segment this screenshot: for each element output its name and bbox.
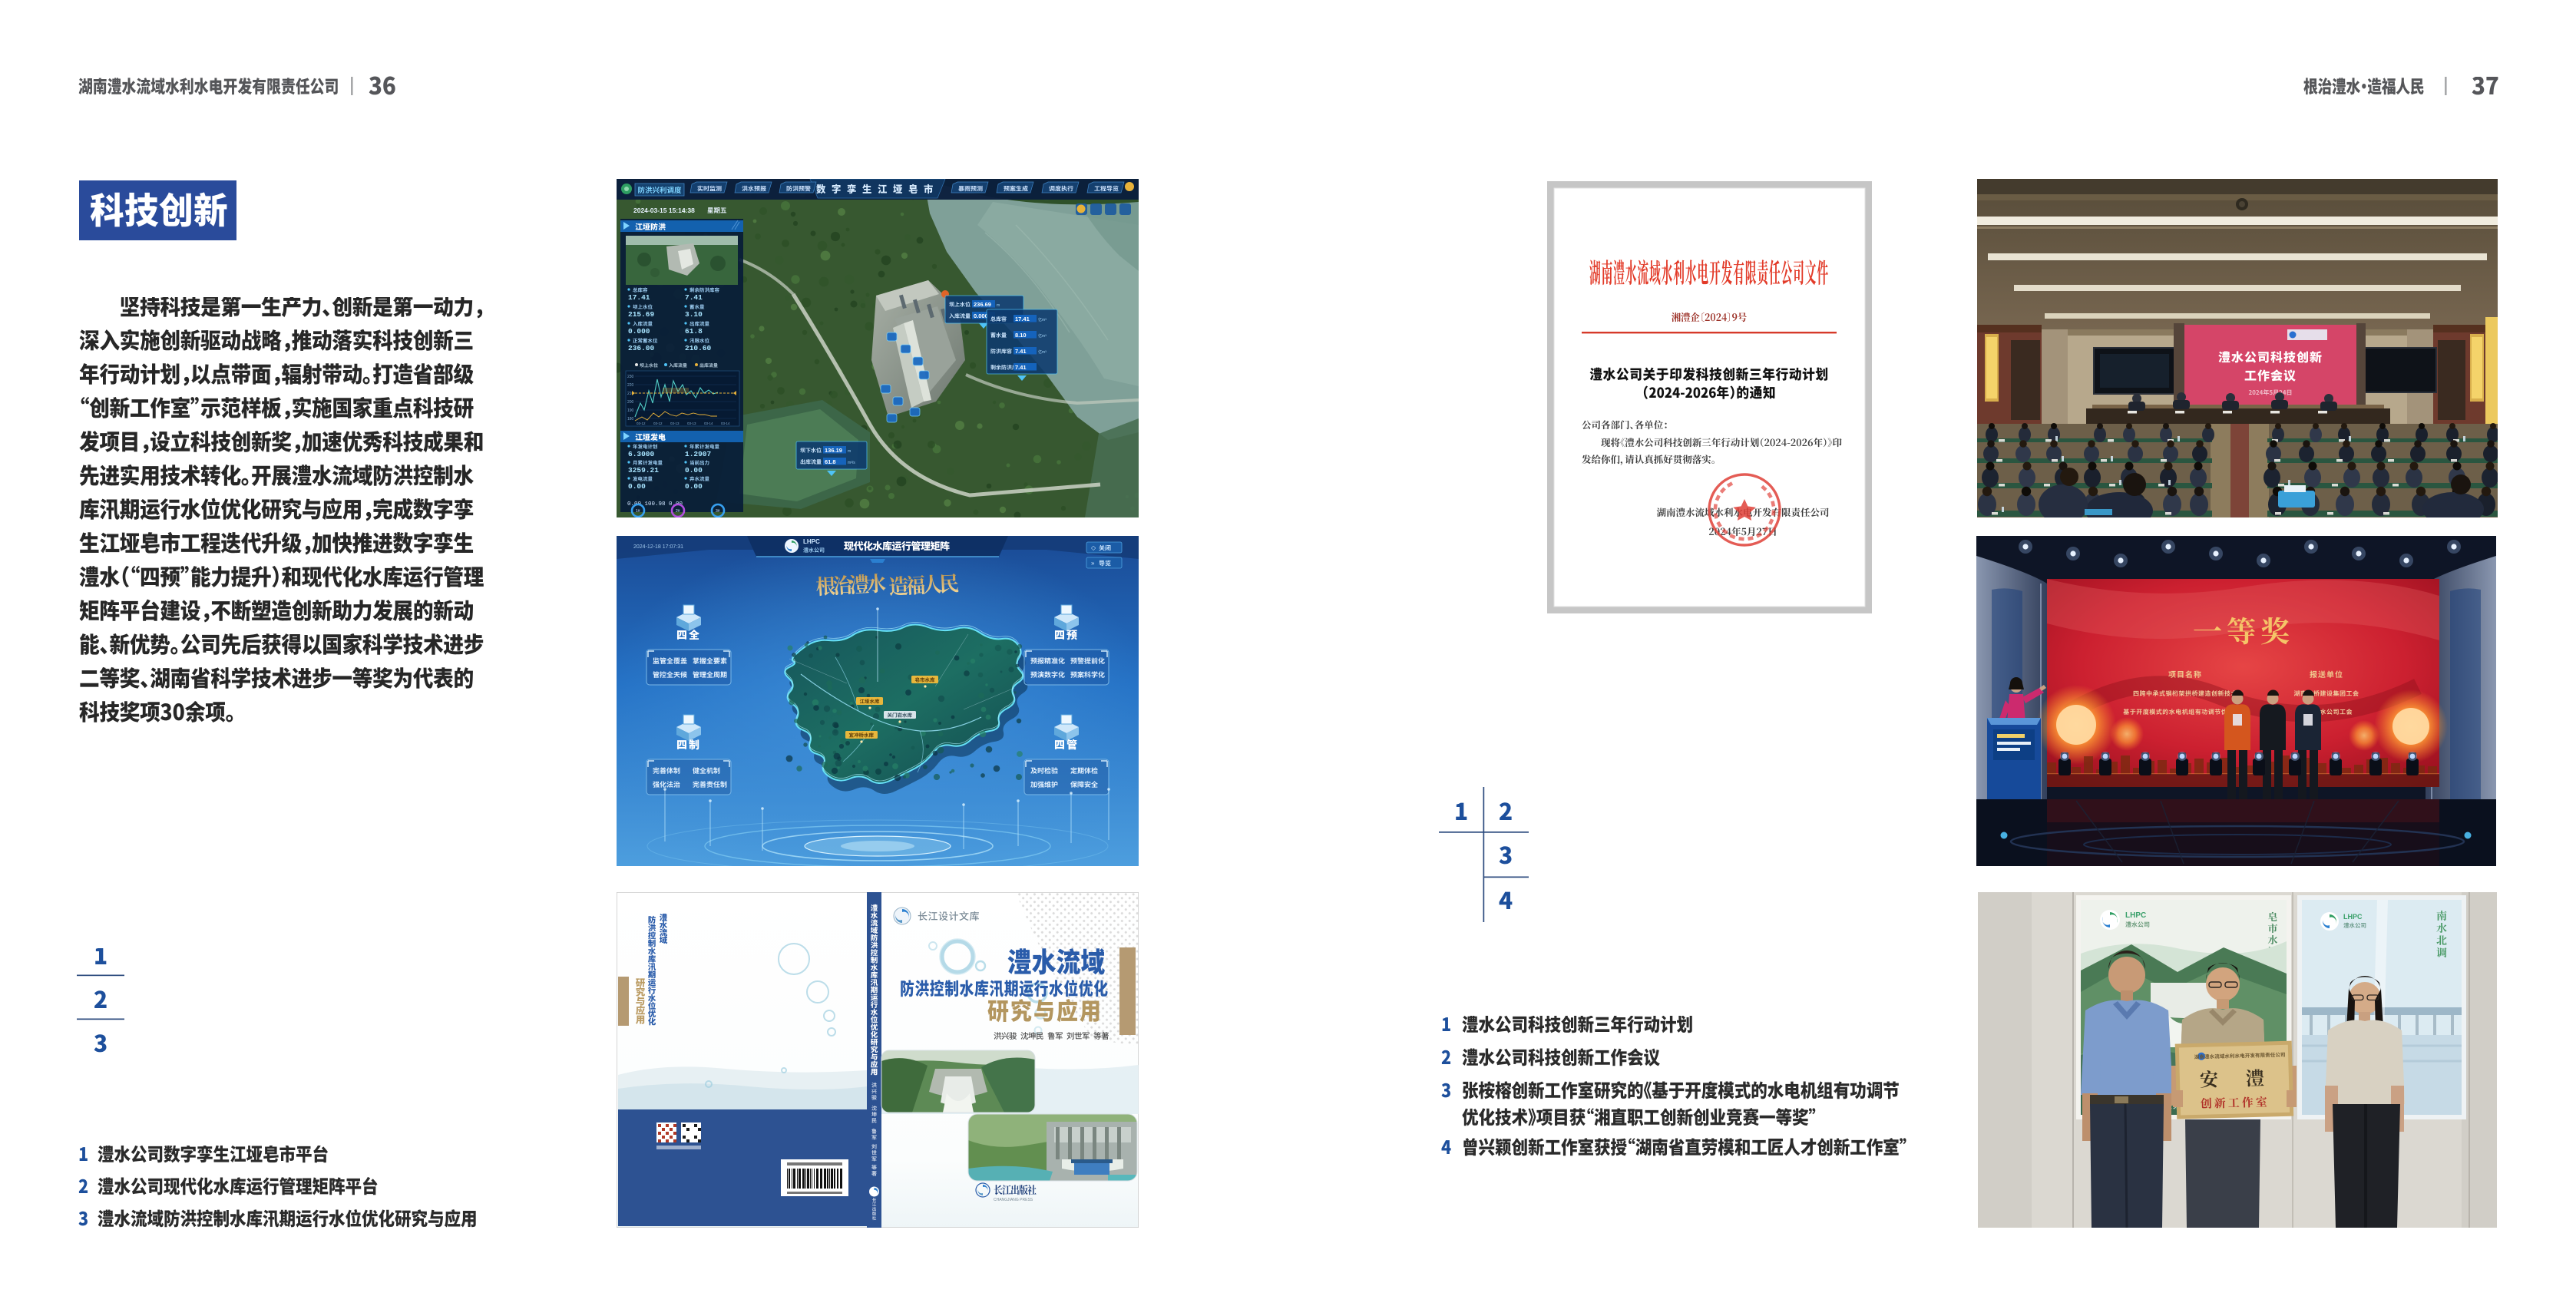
svg-text:03-12: 03-12 <box>637 422 646 425</box>
svg-text:◇: ◇ <box>1091 544 1096 551</box>
svg-text:CHANGJIANG PRESS: CHANGJIANG PRESS <box>994 1198 1033 1202</box>
svg-text:3#: 3# <box>716 509 720 514</box>
svg-text:7.41: 7.41 <box>685 293 703 302</box>
svg-text:0.000: 0.000 <box>628 327 650 336</box>
svg-text:230: 230 <box>627 375 634 379</box>
svg-text:3259.21: 3259.21 <box>628 466 659 474</box>
svg-text:61.8: 61.8 <box>685 327 703 336</box>
svg-text:03-14: 03-14 <box>721 422 730 425</box>
svg-text:0.00: 0.00 <box>685 466 703 474</box>
svg-text:1.2907: 1.2907 <box>685 450 712 458</box>
svg-text:1#: 1# <box>636 509 640 514</box>
svg-text:2024-12-18 17:07:31: 2024-12-18 17:07:31 <box>633 544 683 550</box>
svg-text:0.00: 0.00 <box>628 482 646 491</box>
svg-text:亿m³: 亿m³ <box>1038 349 1047 355</box>
svg-text:03-13: 03-13 <box>687 422 696 425</box>
svg-text:03-14: 03-14 <box>704 422 713 425</box>
svg-text:6.3000: 6.3000 <box>628 450 655 458</box>
svg-text:8.10: 8.10 <box>1015 332 1027 339</box>
svg-text:»: » <box>1091 560 1095 567</box>
svg-text:LHPC: LHPC <box>2125 911 2146 920</box>
svg-text:210.60: 210.60 <box>685 344 712 352</box>
svg-text:215.69: 215.69 <box>628 310 655 319</box>
svg-text:LHPC: LHPC <box>2343 913 2363 921</box>
svg-text:200: 200 <box>627 400 634 405</box>
svg-text:03-13: 03-13 <box>670 422 680 425</box>
svg-text:亿m³: 亿m³ <box>1038 317 1047 322</box>
svg-text:3.10: 3.10 <box>685 310 703 319</box>
svg-text:236.00: 236.00 <box>628 344 655 352</box>
svg-text:03-12: 03-12 <box>653 422 663 425</box>
svg-text:17.41: 17.41 <box>1015 316 1030 322</box>
svg-text:220: 220 <box>627 383 634 388</box>
svg-text:17.41: 17.41 <box>628 293 650 302</box>
svg-text:236.69: 236.69 <box>974 301 991 308</box>
svg-text:0.00: 0.00 <box>685 482 703 491</box>
svg-text:190: 190 <box>627 408 634 413</box>
svg-text:LHPC: LHPC <box>803 538 820 545</box>
svg-text:7.41: 7.41 <box>1015 364 1027 371</box>
svg-text:2#: 2# <box>676 509 680 514</box>
svg-text:180: 180 <box>627 417 634 422</box>
svg-text:m³/s: m³/s <box>848 461 855 465</box>
svg-text:2024-03-15 15:14:38: 2024-03-15 15:14:38 <box>633 207 695 214</box>
svg-text:0.000: 0.000 <box>974 312 988 319</box>
svg-text:亿m³: 亿m³ <box>1038 333 1047 339</box>
svg-text:136.19: 136.19 <box>825 447 842 454</box>
svg-text:m: m <box>848 449 851 454</box>
svg-text:m: m <box>997 303 1000 308</box>
svg-text:61.8: 61.8 <box>825 458 836 465</box>
svg-text:7.41: 7.41 <box>1015 348 1027 355</box>
